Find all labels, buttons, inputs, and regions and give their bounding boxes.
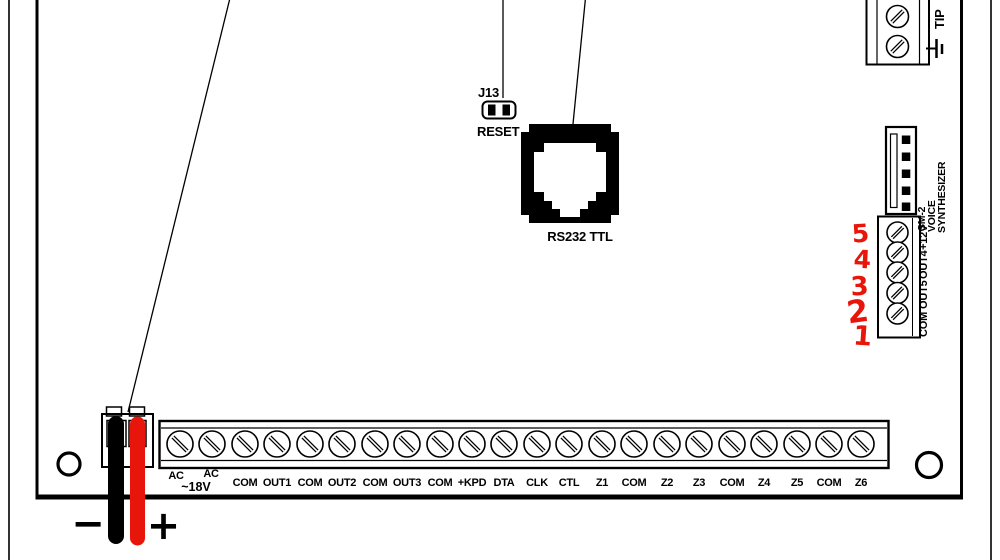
mounting-hole-right — [917, 453, 942, 478]
screw-terminal — [621, 431, 647, 457]
ac-voltage-note: ~18V — [181, 480, 211, 494]
screw-terminal — [362, 431, 388, 457]
screw-terminal — [329, 431, 355, 457]
handwritten-pin-numbers: 5 4 3 2 1 — [844, 218, 873, 352]
terminal-label: AC — [203, 468, 219, 480]
screw-terminal — [524, 431, 550, 457]
terminal-label: CLK — [526, 477, 548, 489]
negative-sign: − — [71, 501, 105, 547]
screw-terminal — [199, 431, 225, 457]
tip-label: TIP — [932, 9, 947, 29]
screw-terminal — [264, 431, 290, 457]
terminal-label: COM — [363, 477, 388, 489]
screw-terminal — [232, 431, 258, 457]
terminal-label: COM — [622, 477, 647, 489]
terminal-label: Z3 — [693, 477, 705, 489]
screw-terminal — [751, 431, 777, 457]
terminal-label: +KPD — [458, 477, 487, 489]
handwritten-pin-4: 4 — [853, 245, 872, 275]
terminal-label: OUT1 — [263, 477, 291, 489]
reset-jumper: J13 RESET — [477, 85, 520, 139]
screw-terminal — [654, 431, 680, 457]
screw-terminal — [848, 431, 874, 457]
screw-terminal — [816, 431, 842, 457]
jumper-pin — [488, 105, 496, 116]
output-terminal-label: +12V — [918, 224, 930, 250]
main-terminal-strip: AC AC COM OUT1 COM OUT2 COM OUT3 COM +KP… — [160, 421, 889, 494]
pcb-wiring-diagram: TIP SM-2 VOICE SYNTHESIZER COM OUT5 OUT4… — [0, 0, 1000, 560]
terminal-label: Z5 — [791, 477, 803, 489]
screw-terminal — [167, 431, 193, 457]
terminal-label: Z4 — [758, 477, 771, 489]
terminal-label: OUT3 — [393, 477, 421, 489]
screw-terminal — [784, 431, 810, 457]
output-terminal-label: OUT5 — [918, 280, 930, 309]
output-terminal-label: OUT4 — [918, 249, 930, 279]
screw-terminal — [719, 431, 745, 457]
screw-terminal — [887, 222, 908, 243]
screw-terminal — [887, 6, 909, 28]
terminal-label: COM — [298, 477, 323, 489]
screw-terminal — [887, 242, 908, 263]
terminal-label: COM — [817, 477, 842, 489]
screw-terminal — [297, 431, 323, 457]
terminal-label: DTA — [494, 477, 515, 489]
header-keying-notch — [891, 134, 898, 208]
reset-label: RESET — [477, 124, 520, 139]
voice-synth-name-line3: SYNTHESIZER — [936, 161, 948, 233]
terminal-label: CTL — [559, 477, 580, 489]
screw-terminal — [887, 283, 908, 304]
screw-terminal — [887, 303, 908, 324]
screw-terminal — [887, 36, 909, 58]
screw-terminal — [427, 431, 453, 457]
output-terminal-block: COM OUT5 OUT4 +12V 5 4 3 2 1 — [844, 217, 930, 353]
positive-sign: + — [147, 503, 181, 549]
jumper-designator: J13 — [478, 85, 499, 100]
terminal-label: COM — [233, 477, 258, 489]
header-pin — [902, 153, 911, 162]
jumper-body — [483, 102, 516, 119]
mounting-hole-left — [58, 453, 80, 475]
serial-jack: RS232 TTL — [521, 124, 619, 244]
tip-terminal-block: TIP — [867, 0, 948, 65]
output-terminal-label: COM — [918, 312, 930, 337]
screw-terminal — [686, 431, 712, 457]
terminal-label: Z1 — [596, 477, 608, 489]
terminal-label: COM — [428, 477, 453, 489]
screw-terminal — [556, 431, 582, 457]
jumper-pin — [503, 105, 511, 116]
serial-jack-label: RS232 TTL — [547, 229, 613, 244]
terminal-label: Z6 — [855, 477, 867, 489]
screw-terminal — [459, 431, 485, 457]
handwritten-pin-1: 1 — [852, 320, 873, 352]
header-pin — [902, 136, 911, 145]
terminal-label: COM — [720, 477, 745, 489]
diagram-canvas: TIP SM-2 VOICE SYNTHESIZER COM OUT5 OUT4… — [0, 0, 1000, 560]
leader-line-serial-jack — [573, 0, 586, 124]
screw-terminal — [887, 262, 908, 283]
terminal-label: OUT2 — [328, 477, 356, 489]
screw-terminal — [491, 431, 517, 457]
header-pin — [902, 203, 911, 212]
screw-terminal — [394, 431, 420, 457]
screw-terminal — [589, 431, 615, 457]
terminal-label: Z2 — [661, 477, 673, 489]
header-pin — [902, 187, 911, 196]
header-pin — [902, 170, 911, 179]
leader-line-battery — [128, 0, 230, 412]
